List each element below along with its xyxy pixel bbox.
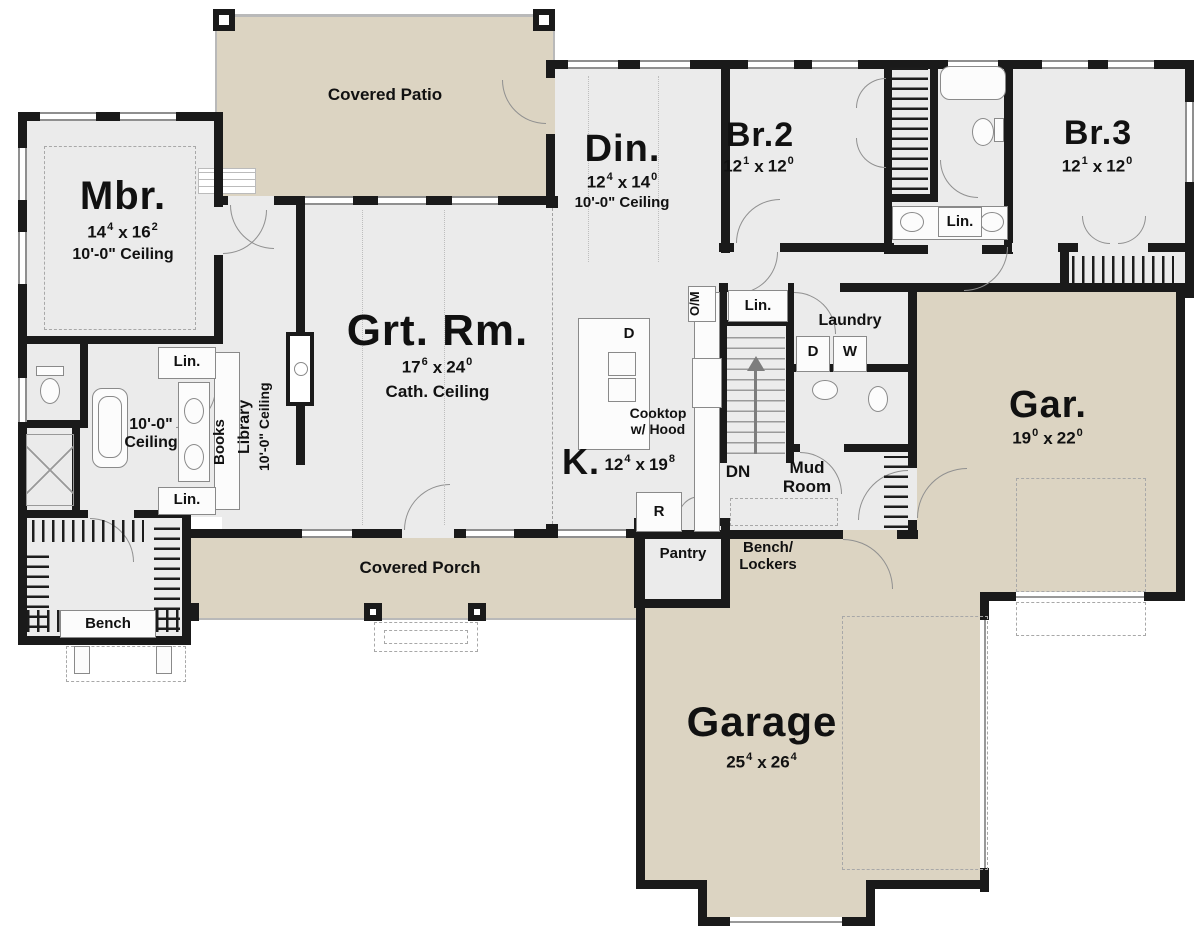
wall (930, 60, 938, 200)
window (1108, 60, 1154, 69)
garage-dimensions: 254x264 (682, 752, 842, 772)
door-opening (88, 510, 134, 518)
fireplace (286, 332, 314, 406)
mbr-label: Mbr. (48, 174, 198, 219)
kitchen-label: K. (562, 441, 600, 482)
dryer-label: D (796, 344, 830, 361)
door-opening (1078, 243, 1148, 252)
washer-label: W (833, 344, 867, 361)
mud-room-label: Mud Room (764, 458, 850, 496)
toilet-bowl (868, 386, 888, 412)
pantry-label: Pantry (642, 546, 724, 563)
door-opening (228, 196, 274, 205)
door-opening (214, 207, 223, 255)
door-opening (794, 283, 840, 292)
stoop-post (156, 646, 172, 674)
island-dishwasher-label: D (616, 326, 642, 343)
island-sink (608, 352, 636, 376)
porch-post (468, 603, 486, 621)
closet-hangers (27, 610, 63, 632)
patio-post (533, 9, 555, 31)
gar-parking-stall (1016, 478, 1146, 592)
island-sink (608, 378, 636, 402)
bench-lockers-label: Bench/ Lockers (722, 540, 814, 574)
window (305, 196, 353, 205)
wall (1176, 290, 1185, 600)
window (18, 148, 27, 200)
wall (884, 202, 892, 251)
grt-rm-ceiling-label: Cath. Ceiling (330, 382, 545, 401)
linen-label: Lin. (938, 214, 982, 231)
stairs-arrow-line (754, 370, 757, 454)
porch-post (364, 603, 382, 621)
floor-plan: Covered Patio Covered Porch Mbr. 144x162… (0, 0, 1200, 940)
window (302, 529, 352, 538)
kitchen-dimensions: 124x198 (604, 455, 676, 474)
mud-bench-dash (730, 498, 838, 526)
porch-edge-bottom (188, 618, 638, 620)
patio-steps (198, 168, 256, 194)
window (748, 60, 794, 69)
patio-post (213, 9, 235, 31)
closet-hangers (32, 520, 144, 542)
linen-label: Lin. (158, 354, 216, 371)
window (378, 196, 426, 205)
library-label: Library (236, 352, 258, 502)
br2-label: Br.2 (700, 116, 820, 154)
toilet-bowl (40, 378, 60, 404)
kitchen-label-group: K. 124x198 (562, 442, 702, 482)
closet-hangers (1072, 256, 1174, 286)
fridge-label: R (636, 504, 682, 521)
covered-patio-floor (215, 15, 555, 200)
front-stoop-inner (384, 630, 468, 644)
toilet-bowl (972, 118, 994, 146)
door-opening (734, 243, 780, 252)
library-ceiling-label: 10'-0" Ceiling (257, 352, 279, 502)
wall (18, 336, 222, 344)
window (558, 529, 626, 538)
wall (296, 405, 305, 465)
gar-dimensions: 190x220 (992, 428, 1104, 448)
covered-patio-label: Covered Patio (300, 85, 470, 104)
door-opening (908, 468, 917, 520)
window (452, 196, 498, 205)
cooktop (692, 358, 722, 408)
br3-dimensions: 121x120 (1040, 156, 1155, 176)
mbr-dimensions: 144x162 (48, 222, 198, 242)
din-dimensions: 124x140 (560, 172, 685, 192)
closet-hangers (890, 66, 928, 190)
window (18, 232, 27, 284)
stoop-post (74, 646, 90, 674)
window (640, 60, 690, 69)
linen-label: Lin. (158, 492, 216, 509)
wall (636, 880, 706, 889)
grt-rm-dimensions: 176x240 (330, 357, 545, 377)
gar-apron (1016, 602, 1146, 636)
mbr-ceiling-label: 10'-0" Ceiling (38, 246, 208, 264)
br2-dimensions: 121x120 (703, 156, 815, 176)
window (120, 112, 176, 121)
bathtub (940, 66, 1006, 100)
din-ceiling-label: 10'-0" Ceiling (552, 195, 692, 212)
door-opening (843, 530, 897, 539)
covered-porch-label: Covered Porch (330, 558, 510, 577)
sink (812, 380, 838, 400)
dn-label: DN (716, 462, 760, 481)
garage-door (1016, 596, 1144, 598)
toilet-tank (36, 366, 64, 376)
door-opening (402, 529, 454, 538)
kitchen-boundary-dash (552, 208, 553, 524)
garage-door (730, 921, 842, 923)
books-label: Books (212, 382, 238, 502)
wall (634, 599, 730, 608)
shower (26, 434, 74, 506)
mbath-ceiling-label: 10'-0" Ceiling (96, 416, 206, 452)
window (1185, 102, 1194, 182)
door-opening (800, 444, 844, 452)
window (18, 378, 27, 422)
din-label: Din. (560, 128, 685, 171)
grt-rm-label: Grt. Rm. (330, 306, 545, 355)
patio-edge-top (216, 14, 554, 17)
oven-micro-label: O/M (688, 287, 716, 321)
wall (868, 880, 989, 889)
wall (884, 194, 938, 202)
stairs-arrow-head (747, 356, 765, 371)
column (546, 524, 558, 536)
linen-label: Lin. (728, 298, 788, 315)
window (812, 60, 858, 69)
garage-parking-stall (842, 616, 988, 870)
window (466, 529, 514, 538)
garage-label: Garage (672, 698, 852, 745)
toilet-tank (994, 118, 1004, 142)
wall (18, 420, 88, 428)
door-opening (546, 78, 555, 134)
window (568, 60, 618, 69)
br3-label: Br.3 (1038, 114, 1158, 152)
laundry-label: Laundry (795, 312, 905, 330)
sink (900, 212, 924, 232)
window (1042, 60, 1088, 69)
door-opening (1012, 243, 1058, 252)
cooktop-label: Cooktop w/ Hood (606, 406, 710, 437)
closet-hangers (884, 456, 908, 528)
wall (80, 343, 88, 425)
wall (296, 205, 305, 333)
gar-label: Gar. (988, 384, 1108, 427)
sink (980, 212, 1004, 232)
window (40, 112, 96, 121)
bench-label: Bench (60, 616, 156, 633)
